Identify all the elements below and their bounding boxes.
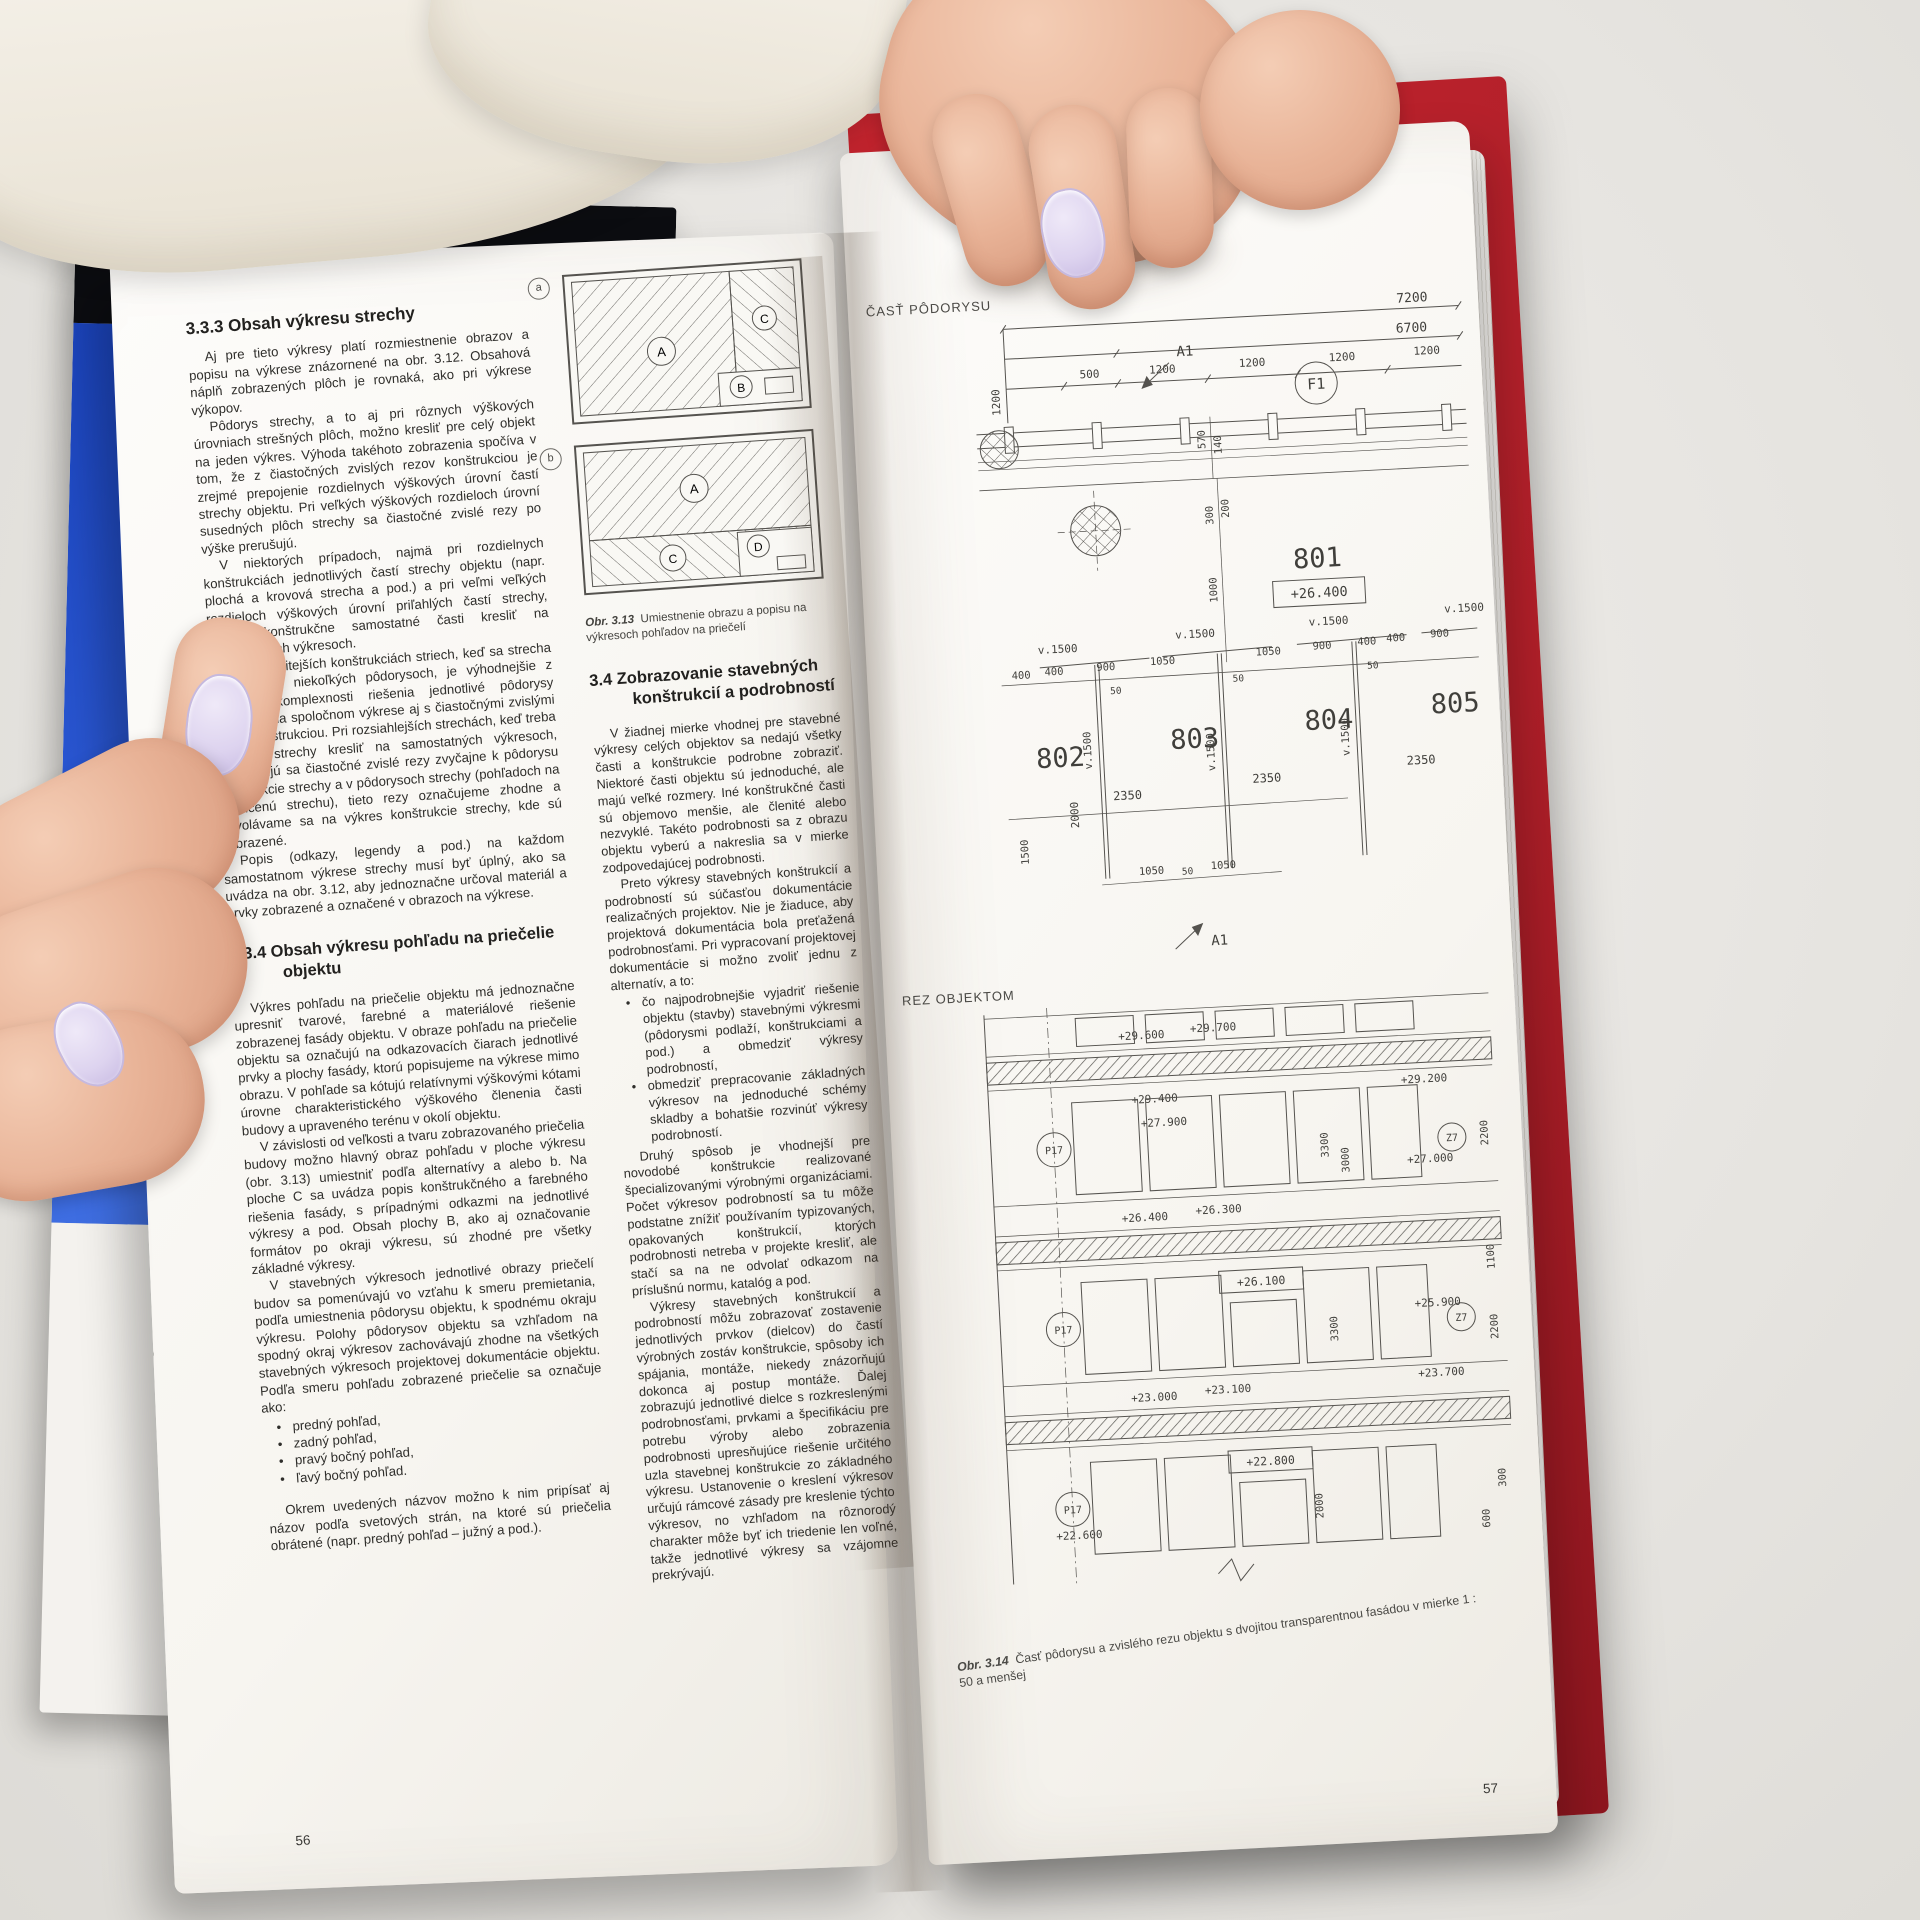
- figure-variant-a-label: a: [527, 277, 550, 300]
- dim-label: 400: [1386, 632, 1406, 645]
- dim-label: 900: [1312, 640, 1332, 653]
- dim-label: 50: [1110, 686, 1122, 698]
- level-mark: +25.900: [1414, 1295, 1461, 1310]
- level-mark: +22.600: [1056, 1528, 1103, 1543]
- section-mark: A1: [1176, 343, 1194, 360]
- figure-3-13-b-drawing: A C D: [573, 428, 825, 597]
- dim-label: 1050: [1255, 645, 1281, 658]
- section-title: REZ OBJEKTOM: [902, 988, 1016, 1009]
- room-number: 805: [1430, 687, 1480, 721]
- list-item-label: obmedziť prepracovanie základných výkres…: [647, 1063, 869, 1145]
- room-number: 804: [1304, 704, 1354, 738]
- dim-label: 1100: [1485, 1243, 1498, 1269]
- area-mark: D: [754, 539, 764, 554]
- height-label: v.1500: [1175, 627, 1215, 642]
- dim-label: 500: [1079, 367, 1100, 381]
- height-label: v.1500: [1308, 614, 1348, 629]
- dim-label: 50: [1367, 660, 1379, 672]
- dim-label: 7200: [1396, 290, 1428, 307]
- level-mark: +22.800: [1246, 1453, 1295, 1470]
- figure-3-14-drawing: ČASŤ PÔDORYSU 7200 6700 500 1200 1200 12…: [851, 259, 1536, 1625]
- dim-label: 1050: [1150, 655, 1176, 668]
- photo-scene: www. Č Dopra ochran ovzdu 3.3.3 Obsah vý…: [0, 0, 1920, 1920]
- detail-mark: Z7: [1455, 1312, 1468, 1324]
- paragraph: Preto výkresy stavebných konštrukcií a p…: [603, 860, 859, 995]
- room-number: 802: [1035, 742, 1085, 776]
- dim-label: 300: [1204, 505, 1217, 525]
- section-heading-3-4: 3.4 Zobrazovanie stavebných konštrukcií …: [589, 653, 839, 712]
- dim-label: 6700: [1395, 320, 1427, 337]
- paragraph: V závislosti od veľkosti a tvaru zobrazo…: [242, 1116, 593, 1279]
- dim-label: 1000: [1207, 577, 1220, 603]
- page-number-right: 57: [1483, 1780, 1499, 1796]
- area-mark: A: [689, 481, 699, 497]
- dim-label: 1200: [1413, 344, 1440, 358]
- dim-label: 2000: [1313, 1493, 1326, 1519]
- area-mark: B: [737, 381, 746, 396]
- bullet-icon: •: [280, 1469, 297, 1487]
- detail-mark: Z7: [1446, 1133, 1459, 1145]
- dim-label: 2350: [1406, 752, 1436, 767]
- figure-variant-b-label: b: [539, 447, 562, 470]
- area-mark: C: [760, 312, 770, 327]
- dim-label: 400: [1011, 669, 1031, 682]
- area-mark: C: [668, 551, 678, 566]
- dim-label: 900: [1430, 627, 1450, 640]
- dim-label: 50: [1232, 673, 1244, 685]
- level-mark: +29.600: [1118, 1028, 1165, 1043]
- level-mark: +29.200: [1400, 1071, 1447, 1086]
- alternatives-list: •čo najpodrobnejšie vyjadriť riešenie ob…: [625, 979, 869, 1146]
- level-mark: +26.100: [1237, 1273, 1286, 1290]
- left-page-column-1: 3.3.3 Obsah výkresu strechy Aj pre tieto…: [185, 297, 612, 1555]
- dim-label: 300: [1496, 1467, 1509, 1487]
- level-mark: +27.000: [1407, 1151, 1454, 1166]
- dim-label: 900: [1096, 661, 1116, 674]
- list-item: •čo najpodrobnejšie vyjadriť riešenie ob…: [625, 979, 864, 1079]
- dim-label: 1050: [1139, 865, 1165, 878]
- detail-mark: P17: [1054, 1325, 1073, 1337]
- bullet-icon: •: [278, 1452, 295, 1470]
- height-label: v.1500: [1444, 601, 1484, 616]
- dim-label: 1500: [1019, 839, 1032, 865]
- section-heading-3-3-4: 3.3.4 Obsah výkresu pohľadu na priečelie…: [229, 921, 573, 987]
- dim-label: 2350: [1252, 770, 1282, 785]
- dim-label: 1200: [989, 389, 1003, 416]
- dim-label: 2200: [1488, 1313, 1501, 1339]
- paragraph: Druhý spôsob je vhodnejší pre novodobé k…: [622, 1132, 880, 1300]
- dim-label: 140: [1212, 435, 1225, 455]
- level-mark: +26.400: [1121, 1210, 1168, 1225]
- bullet-icon: •: [277, 1435, 294, 1453]
- page-number-left: 56: [295, 1832, 311, 1848]
- room-number: 803: [1170, 723, 1220, 757]
- dim-label: 2350: [1113, 788, 1143, 803]
- dim-label: 3300: [1318, 1132, 1331, 1158]
- page-right: ČASŤ PÔDORYSU 7200 6700 500 1200 1200 12…: [840, 121, 1559, 1866]
- paragraph: Okrem uvedených názvov možno k nim pripí…: [268, 1479, 613, 1555]
- figure-3-13-b: b A C D: [573, 427, 831, 601]
- detail-mark: P17: [1064, 1505, 1083, 1517]
- figure-3-13-a-drawing: A C B: [561, 257, 813, 426]
- right-hand-knuckles: [1200, 10, 1400, 210]
- dim-label: 3000: [1339, 1147, 1352, 1173]
- level-mark: +23.000: [1131, 1390, 1178, 1405]
- level-mark: +26.300: [1195, 1202, 1242, 1217]
- area-mark: A: [657, 344, 667, 360]
- dim-label: 400: [1044, 666, 1064, 679]
- bullet-icon: •: [276, 1417, 293, 1435]
- dim-label: 400: [1357, 635, 1377, 648]
- level-mark: +23.700: [1418, 1365, 1465, 1380]
- dim-label: 2200: [1478, 1120, 1491, 1146]
- dim-label: 3300: [1328, 1316, 1341, 1342]
- dim-label: 1200: [1328, 350, 1355, 364]
- detail-mark: P17: [1045, 1145, 1064, 1157]
- page-left: 3.3.3 Obsah výkresu strechy Aj pre tieto…: [110, 232, 899, 1894]
- section-mark: A1: [1211, 932, 1229, 949]
- dim-label: 50: [1182, 866, 1194, 878]
- level-mark: +23.100: [1204, 1382, 1251, 1397]
- dim-label: 570: [1196, 430, 1209, 450]
- paragraph: V stavebných výkresoch jednotlivé obrazy…: [252, 1255, 603, 1418]
- level-mark: +29.700: [1190, 1020, 1237, 1035]
- dim-label: 600: [1480, 1508, 1493, 1528]
- paragraph: V žiadnej mierke vhodnej pre stavebné vý…: [592, 709, 850, 877]
- paragraph: Výkres pohľadu na priečelie objektu má j…: [233, 977, 584, 1140]
- grid-mark: F1: [1307, 375, 1326, 394]
- figure-3-13-a: a A: [561, 257, 819, 431]
- dim-label: 1050: [1210, 859, 1236, 872]
- list-item-label: čo najpodrobnejšie vyjadriť riešenie obj…: [641, 979, 864, 1078]
- figure-3-13-caption: Obr. 3.13 Umiestnenie obrazu a popisu na…: [585, 598, 834, 645]
- dim-label: 1200: [1239, 356, 1266, 370]
- paragraph: Pôdorys strechy, a to aj pri rôznych výš…: [192, 395, 543, 558]
- dim-label: 200: [1219, 499, 1232, 519]
- room-number: 801: [1292, 542, 1342, 576]
- figure-caption-number: Obr. 3.13: [585, 612, 635, 628]
- height-label: v.1500: [1038, 642, 1078, 657]
- level-mark: +26.400: [1290, 584, 1348, 603]
